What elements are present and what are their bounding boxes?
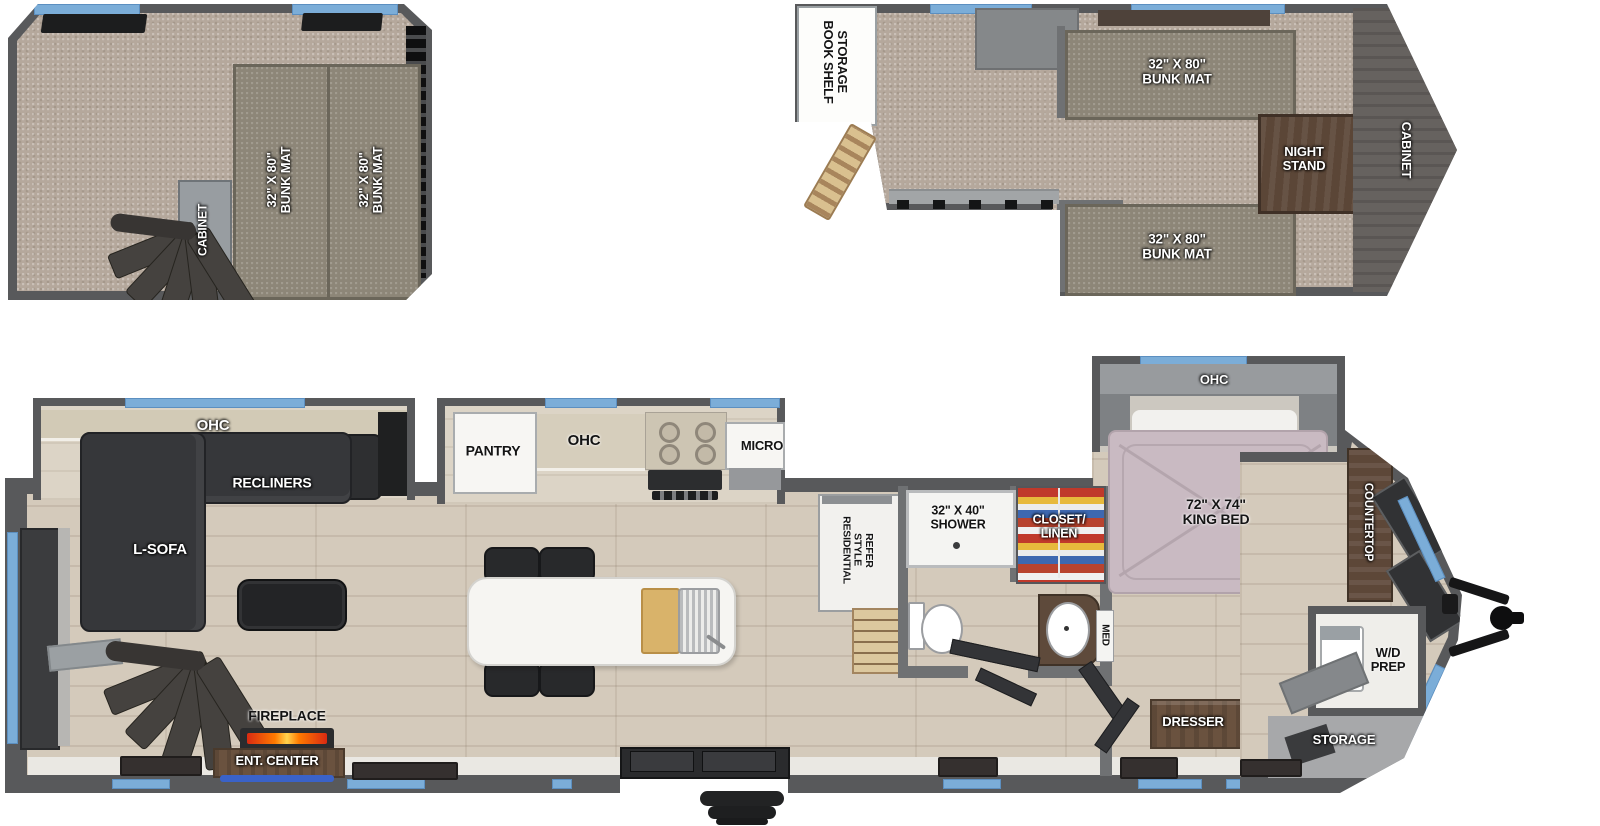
stove-burner <box>659 444 680 465</box>
refrigerator-top <box>822 496 892 504</box>
med-label: MED <box>1099 624 1110 646</box>
king-bed-label: 72" X 74" KING BED <box>1183 497 1250 527</box>
ohc-bedroom-label: OHC <box>1200 373 1228 387</box>
front-loft <box>795 4 1457 296</box>
bath-wall <box>898 666 968 678</box>
rear-loft-vent-left <box>41 14 148 33</box>
refer-label: RESIDENTIAL STYLE REFER <box>840 516 874 584</box>
entry-step <box>700 791 784 806</box>
living-slideout-window <box>125 398 305 408</box>
l-sofa-label: L-SOFA <box>133 542 187 558</box>
rear-loft-bunk-mat-right-label: 32" X 80" BUNK MAT <box>357 147 385 214</box>
front-loft-edge-post <box>1041 200 1053 209</box>
rear-loft-bunk-mat-left-label: 32" X 80" BUNK MAT <box>265 147 293 214</box>
stove-burner <box>695 422 716 443</box>
front-loft-cabinet-label: CABINET <box>1399 122 1413 178</box>
bottom-window <box>943 779 1001 789</box>
ent-center-led <box>220 775 334 782</box>
recliners-label: RECLINERS <box>232 475 311 490</box>
stove-cooktop <box>645 412 727 470</box>
bottom-window <box>552 779 572 789</box>
front-loft-bunk-bottom-label: 32" X 80" BUNK MAT <box>1142 232 1211 261</box>
dresser-label: DRESSER <box>1162 715 1223 729</box>
front-loft-wall <box>1057 202 1065 292</box>
front-loft-headboard <box>1098 10 1270 26</box>
island-sink <box>678 588 720 654</box>
micro-label: MICRO <box>741 439 783 453</box>
island-chair <box>539 661 595 697</box>
end-cabinet <box>378 412 407 496</box>
wd-prep-label: W/D PREP <box>1371 646 1406 674</box>
entry-step <box>716 818 768 825</box>
entry-platform-panel <box>702 751 776 772</box>
kitchen-slideout-window <box>710 398 780 408</box>
bench-cabinet <box>1120 757 1178 779</box>
micro-shelf <box>729 468 781 490</box>
hitch-coupler-tip <box>1510 612 1524 624</box>
ohc-living-label: OHC <box>197 418 230 434</box>
floorplan-canvas: 32" X 80" BUNK MAT 32" X 80" BUNK MAT CA… <box>0 0 1600 826</box>
front-loft-stair-railing <box>803 123 877 221</box>
bath-sink-faucet <box>1064 626 1069 631</box>
l-sofa-side <box>80 432 206 632</box>
tongue-jack <box>1442 594 1458 614</box>
rear-wall-window <box>7 532 18 744</box>
coffee-table <box>237 579 347 631</box>
bottom-window <box>1138 779 1202 789</box>
bench-cabinet <box>1240 759 1302 777</box>
rear-loft-vent-right <box>301 13 383 31</box>
storage-label: STORAGE <box>1313 733 1376 747</box>
rear-tv-cabinet-frame <box>58 528 70 746</box>
bench-cabinet <box>352 762 458 780</box>
front-loft-bunk-top-label: 32" X 80" BUNK MAT <box>1142 57 1211 86</box>
front-loft-edge-post <box>969 200 981 209</box>
bench-cabinet <box>120 756 202 776</box>
fireplace-label: FIREPLACE <box>248 708 326 723</box>
front-loft-edge-post <box>1005 200 1017 209</box>
rear-loft-cabinet-label: CABINET <box>197 204 210 256</box>
island-cutting-board <box>641 588 680 654</box>
loft-stairs <box>852 608 904 674</box>
ohc-kitchen-label: OHC <box>568 433 601 449</box>
shower-label: 32" X 40" SHOWER <box>930 505 985 532</box>
oven-knobs <box>652 491 718 500</box>
top-wall-segment <box>5 478 35 494</box>
kitchen-slideout-window <box>545 398 617 408</box>
closet-linen-label: CLOSET/ LINEN <box>1033 514 1086 541</box>
front-loft-edge-post <box>897 200 909 209</box>
bottom-window <box>347 779 425 789</box>
top-wall-segment <box>415 482 439 496</box>
washer-prep-top <box>1320 626 1360 640</box>
stove-burner <box>695 444 716 465</box>
rear-tv-cabinet <box>20 528 60 750</box>
front-loft-bookshelf-label: BOOK SHELF STORAGE <box>821 20 849 103</box>
stove-burner <box>659 422 680 443</box>
bench-cabinet <box>938 757 998 777</box>
entry-platform-panel <box>630 751 694 772</box>
countertop-label: COUNTERTOP <box>1362 483 1374 561</box>
fireplace-flame <box>247 733 327 744</box>
front-loft-edge-post <box>933 200 945 209</box>
front-loft-wall <box>1057 26 1065 116</box>
ent-center-label: ENT. CENTER <box>235 754 318 768</box>
bottom-window <box>112 779 170 789</box>
shower-drain <box>953 542 960 549</box>
island-chair <box>484 661 540 697</box>
pantry-label: PANTRY <box>466 443 521 458</box>
oven-front <box>648 470 722 490</box>
front-loft-night-stand-label: NIGHT STAND <box>1283 145 1326 173</box>
